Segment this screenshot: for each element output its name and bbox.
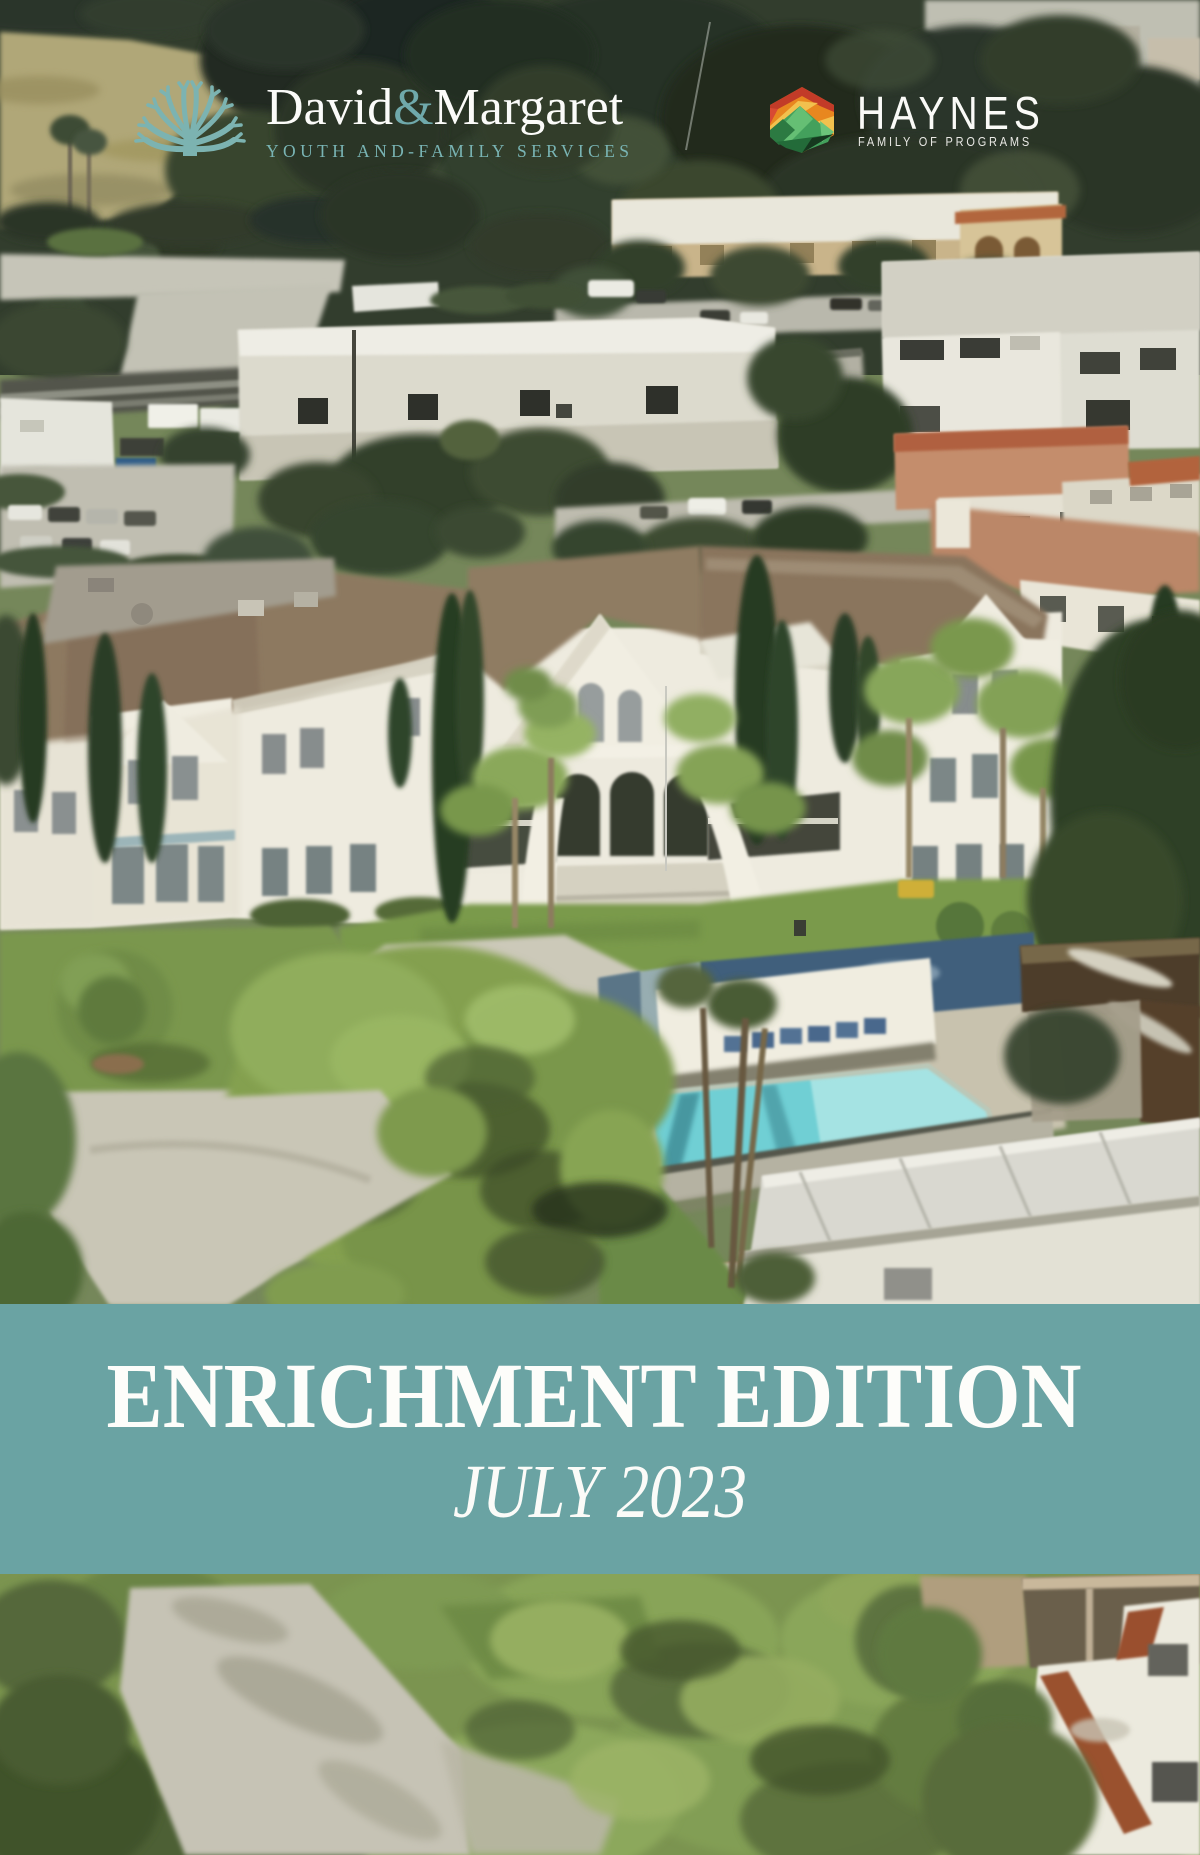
svg-text:ENRICHMENT EDITION: ENRICHMENT EDITION [107,1345,1082,1448]
svg-text:David&Margaret: David&Margaret [266,79,624,136]
svg-text:YOUTH AND-FAMILY SERVICES: YOUTH AND-FAMILY SERVICES [266,141,633,161]
svg-text:HAYNES: HAYNES [857,87,1045,139]
svg-text:JULY 2023: JULY 2023 [453,1450,747,1534]
svg-text:FAMILY OF PROGRAMS: FAMILY OF PROGRAMS [858,135,1032,149]
